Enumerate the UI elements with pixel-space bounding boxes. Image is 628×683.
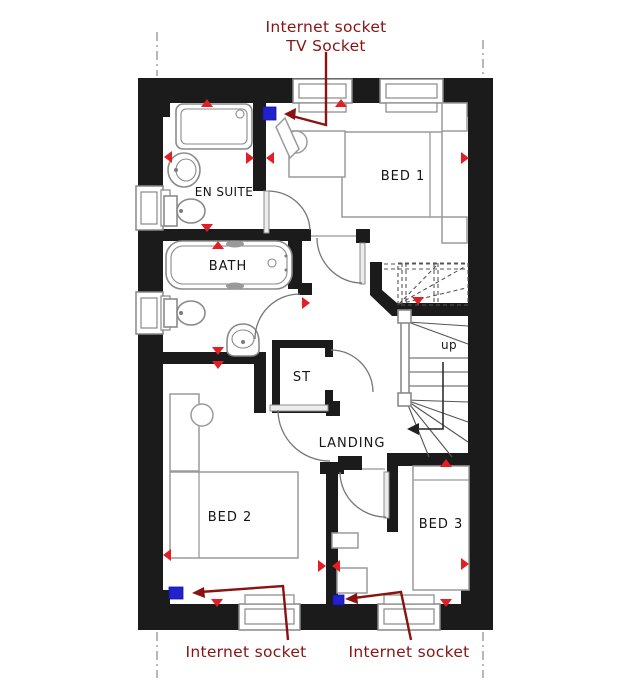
door-arc bbox=[340, 472, 386, 517]
room-label-landing: LANDING bbox=[319, 436, 386, 451]
newel-post bbox=[398, 393, 411, 406]
door-arc bbox=[317, 238, 362, 283]
room-label-ensuite: EN SUITE bbox=[195, 185, 253, 199]
stairs-up-label: up bbox=[441, 338, 457, 352]
annotation-top-line1: Internet socket bbox=[265, 18, 386, 36]
arrow-head bbox=[192, 587, 205, 598]
room-label-storage: ST bbox=[293, 370, 311, 385]
door-arc bbox=[255, 294, 300, 339]
floor-plan-page: BED 1 EN SUITE BATH ST LANDING BED 2 BED… bbox=[0, 0, 628, 683]
power-socket-marker bbox=[163, 549, 171, 561]
window bbox=[239, 595, 300, 630]
shower-tray bbox=[176, 104, 252, 149]
newel-post bbox=[398, 310, 411, 323]
power-socket-marker bbox=[246, 152, 254, 164]
floor-plan: BED 1 EN SUITE BATH ST LANDING BED 2 BED… bbox=[0, 0, 628, 683]
stairs-direction-arrow bbox=[407, 423, 419, 435]
door-arc bbox=[269, 191, 310, 230]
annotation-top-line2: TV Socket bbox=[285, 37, 366, 55]
washbasin bbox=[168, 153, 200, 187]
toilet bbox=[164, 299, 205, 327]
internet-socket-marker bbox=[169, 587, 183, 599]
window bbox=[293, 79, 352, 112]
room-label-bath: BATH bbox=[209, 259, 248, 274]
door-arc bbox=[331, 350, 373, 392]
door-leaf bbox=[270, 405, 328, 411]
room-label-bed1: BED 1 bbox=[381, 169, 426, 184]
handrail bbox=[401, 322, 409, 394]
internet-socket-marker bbox=[263, 107, 276, 120]
desk bbox=[170, 394, 213, 471]
staircase bbox=[384, 263, 468, 457]
room-label-bed2: BED 2 bbox=[208, 510, 253, 525]
annotation-bottom-right: Internet socket bbox=[348, 643, 469, 661]
power-socket-marker bbox=[212, 361, 224, 369]
power-socket-marker bbox=[318, 560, 326, 572]
internet-socket-marker bbox=[333, 595, 344, 605]
arrow-head bbox=[345, 593, 358, 604]
annotation-bottom-left: Internet socket bbox=[185, 643, 306, 661]
door-leaf bbox=[264, 191, 269, 233]
stairs-bulkhead bbox=[384, 263, 468, 305]
power-socket-marker bbox=[302, 297, 310, 309]
window bbox=[380, 79, 443, 112]
door-leaf bbox=[360, 243, 365, 284]
power-socket-marker bbox=[164, 151, 172, 163]
washbasin bbox=[227, 324, 259, 356]
power-socket-marker bbox=[266, 152, 274, 164]
toilet bbox=[164, 196, 205, 226]
power-socket-marker bbox=[461, 152, 469, 164]
room-label-bed3: BED 3 bbox=[419, 517, 464, 532]
dressing-table bbox=[276, 118, 345, 177]
door-leaf bbox=[384, 472, 389, 518]
